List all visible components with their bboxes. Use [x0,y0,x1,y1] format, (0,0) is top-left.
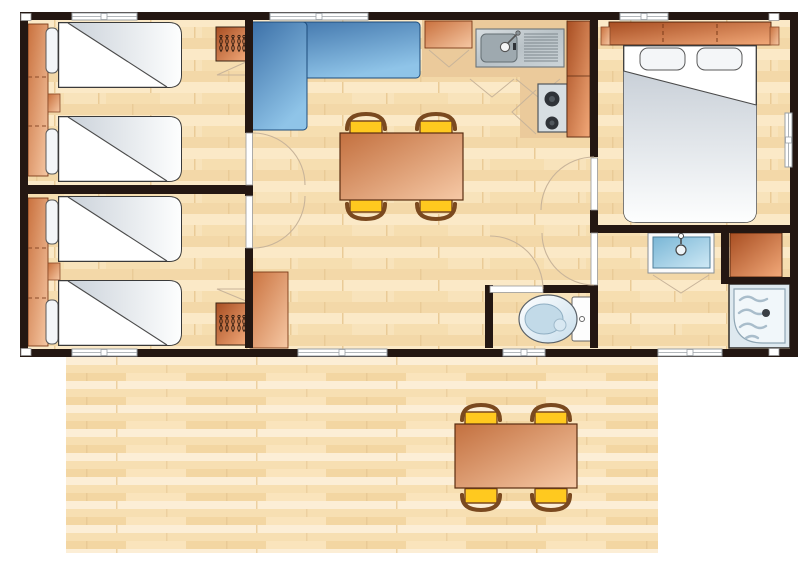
corner-mark-icon [769,349,779,356]
wall-living-rightwing-lower [590,285,598,348]
window-living-bottom [298,349,387,356]
living-storage-cabinet [250,272,288,348]
pillow [46,28,58,73]
wall-bedroom-bathroom [598,225,790,233]
window-double-bedroom-top [620,13,668,20]
window-wc-bottom [503,349,545,356]
bedside-shelf [48,263,60,280]
flush-button-icon [580,317,585,322]
kitchen-base-cabinet [425,21,472,48]
shower [729,284,790,348]
corner-mark-icon [21,14,31,21]
side-table [601,27,610,45]
kitchen-sink [476,29,564,67]
door-leaf-bedroom-2 [246,196,253,248]
door-leaf-bathroom [591,233,598,285]
pillow [46,129,58,174]
faucet-lever [513,43,516,50]
side-table [770,27,779,45]
dining-table [340,133,463,200]
pillow [46,200,58,244]
hanging-wardrobe [216,27,247,61]
wall-wc-top [543,285,590,293]
kitchen-tall-cabinet [567,21,590,137]
window-bedroom1-top [72,13,137,20]
double-bedroom [601,22,779,222]
window-living-top [270,13,368,20]
corner-mark-icon [769,14,779,21]
door-leaf-wc [490,286,543,293]
wardrobe-strip [28,198,48,346]
shower-drain-icon [762,309,770,317]
basin-tap-knob [679,234,684,239]
deck-terrace [66,357,658,553]
basin-drain [676,245,686,255]
toilet-detail [554,319,566,331]
window-bedroom2-bottom [72,349,137,356]
floor-plan-drawing [0,0,800,565]
bedside-shelf [48,94,60,112]
single-bed [59,281,182,346]
headboard-storage [609,22,771,45]
corner-mark-icon [21,349,31,356]
wall-shower-left [721,233,729,284]
single-bed [59,117,182,182]
wall-living-rightwing-middle [590,210,598,233]
faucet-knob-icon [516,31,520,35]
double-bed [624,46,757,223]
washbasin [648,233,714,273]
faucet-base-icon [500,42,509,51]
wall-bedrooms-living-upper [245,20,253,133]
wc [519,295,592,343]
hanging-wardrobe [216,303,247,345]
shower-tray [734,289,785,343]
wall-shower-top [721,277,790,284]
pillow [46,300,58,344]
bathroom-cabinet [730,233,782,277]
outdoor-table [455,424,577,488]
sink-bowl [481,34,517,62]
window-double-bedroom-right [785,113,792,167]
wall-bedrooms-living-lower [245,248,253,348]
single-bed [59,197,182,262]
wardrobe-strip [28,24,48,176]
two-burner-hob [538,84,567,132]
wall-living-rightwing-upper [590,20,598,157]
wall-wc-left [485,285,493,348]
single-bed [59,23,182,88]
sofa-seat-left [248,22,307,130]
door-leaf-bedroom-1 [246,133,253,185]
window-bathroom-bottom [658,349,722,356]
door-leaf-double-bedroom [591,158,598,210]
wall-between-bedrooms [24,185,253,194]
floor-plan [0,0,800,565]
